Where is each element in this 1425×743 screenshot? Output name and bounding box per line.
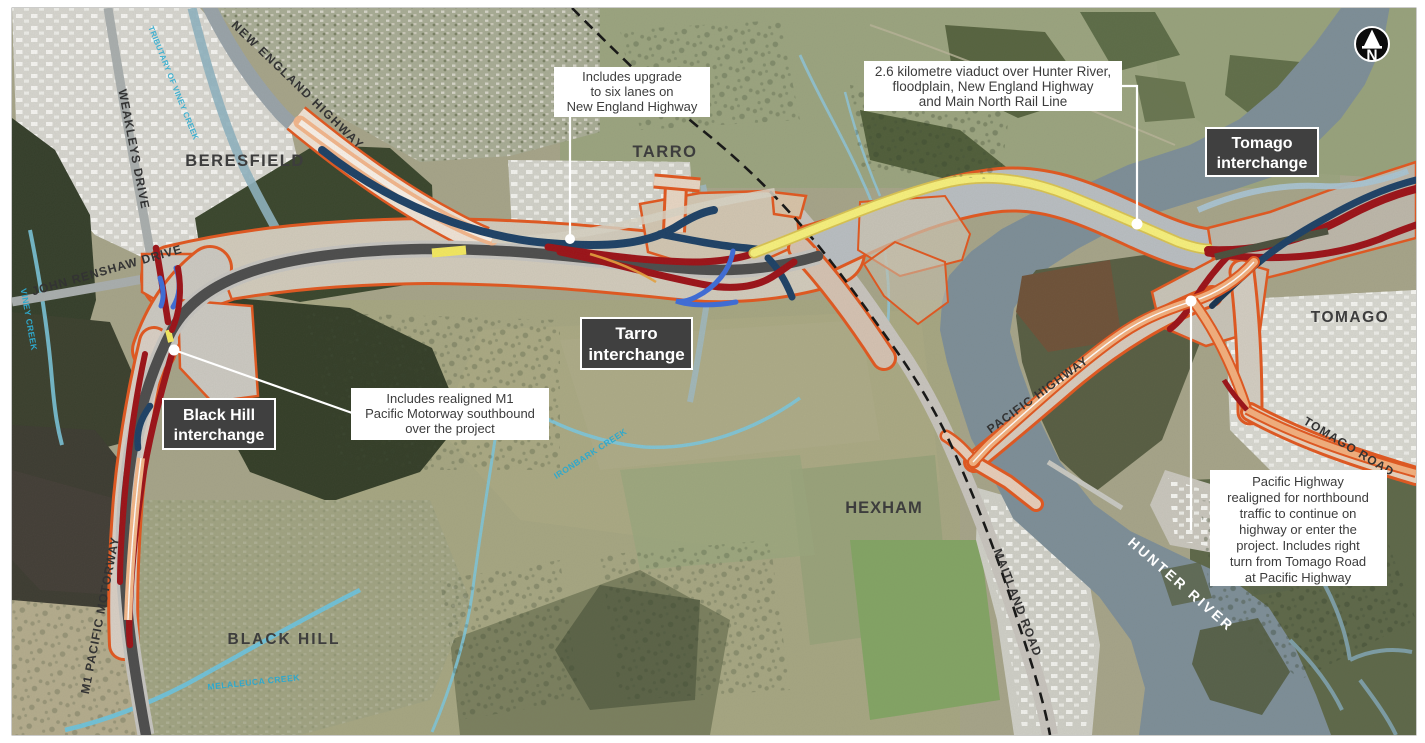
- svg-text:N: N: [1366, 48, 1377, 65]
- svg-text:interchange: interchange: [588, 345, 684, 364]
- svg-text:BERESFIELD: BERESFIELD: [185, 152, 305, 170]
- svg-text:realigned for northbound: realigned for northbound: [1227, 490, 1369, 505]
- svg-text:2.6 kilometre viaduct over Hun: 2.6 kilometre viaduct over Hunter River,: [875, 64, 1111, 79]
- svg-text:New England Highway: New England Highway: [567, 99, 698, 114]
- svg-text:BLACK HILL: BLACK HILL: [228, 631, 341, 648]
- svg-text:Pacific Motorway southbound: Pacific Motorway southbound: [365, 406, 535, 421]
- svg-text:interchange: interchange: [174, 427, 265, 444]
- svg-text:at Pacific Highway: at Pacific Highway: [1245, 570, 1352, 585]
- svg-text:Includes upgrade: Includes upgrade: [582, 69, 682, 84]
- svg-text:and Main North Rail Line: and Main North Rail Line: [919, 94, 1068, 109]
- svg-text:TOMAGO: TOMAGO: [1311, 309, 1389, 326]
- svg-text:HEXHAM: HEXHAM: [845, 499, 923, 517]
- svg-text:floodplain, New England Highwa: floodplain, New England Highway: [892, 79, 1093, 94]
- svg-text:traffic to continue on: traffic to continue on: [1240, 506, 1357, 521]
- svg-text:to six lanes on: to six lanes on: [590, 84, 673, 99]
- svg-text:Tarro: Tarro: [615, 324, 657, 343]
- svg-text:Includes realigned M1: Includes realigned M1: [386, 391, 513, 406]
- svg-text:over the project: over the project: [405, 421, 495, 436]
- svg-text:Tomago: Tomago: [1231, 135, 1292, 152]
- svg-text:turn from Tomago Road: turn from Tomago Road: [1230, 554, 1366, 569]
- svg-text:TARRO: TARRO: [633, 143, 698, 161]
- svg-text:interchange: interchange: [1217, 155, 1308, 172]
- svg-text:highway or enter the: highway or enter the: [1239, 522, 1357, 537]
- svg-text:Pacific Highway: Pacific Highway: [1252, 474, 1344, 489]
- svg-text:Black Hill: Black Hill: [183, 407, 255, 424]
- svg-text:project. Includes right: project. Includes right: [1236, 538, 1360, 553]
